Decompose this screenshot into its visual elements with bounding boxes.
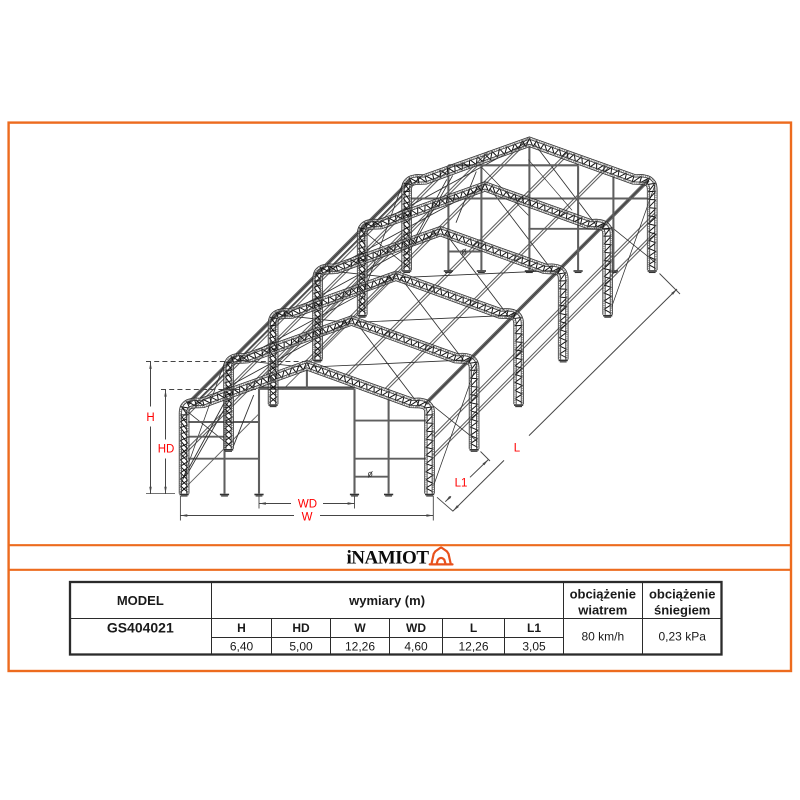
- svg-text:5,00: 5,00: [289, 640, 313, 654]
- svg-text:L1: L1: [455, 478, 468, 490]
- svg-text:0,23 kPa: 0,23 kPa: [659, 630, 707, 644]
- svg-text:HD: HD: [158, 444, 175, 456]
- svg-text:H: H: [237, 621, 246, 635]
- svg-text:W: W: [302, 511, 313, 523]
- svg-text:wymiary (m): wymiary (m): [348, 593, 425, 608]
- svg-text:MODEL: MODEL: [117, 593, 164, 608]
- svg-text:12,26: 12,26: [345, 640, 375, 654]
- svg-text:L: L: [470, 621, 477, 635]
- svg-text:obciążenie: obciążenie: [649, 587, 715, 602]
- svg-text:W: W: [354, 621, 366, 635]
- svg-text:L1: L1: [527, 621, 541, 635]
- svg-text:HD: HD: [292, 621, 310, 635]
- svg-text:3,05: 3,05: [522, 640, 546, 654]
- svg-text:WD: WD: [298, 499, 317, 511]
- svg-text:obciążenie: obciążenie: [570, 587, 636, 602]
- svg-text:L: L: [514, 443, 521, 455]
- svg-text:śniegiem: śniegiem: [654, 603, 710, 618]
- svg-text:GS404021: GS404021: [107, 620, 174, 636]
- svg-text:wiatrem: wiatrem: [577, 603, 627, 618]
- svg-text:iNAMIOT: iNAMIOT: [347, 547, 430, 568]
- svg-text:WD: WD: [406, 621, 426, 635]
- svg-text:H: H: [146, 412, 154, 424]
- svg-text:4,60: 4,60: [404, 640, 428, 654]
- svg-text:6,40: 6,40: [230, 640, 254, 654]
- svg-text:80 km/h: 80 km/h: [581, 630, 624, 644]
- svg-text:12,26: 12,26: [458, 640, 488, 654]
